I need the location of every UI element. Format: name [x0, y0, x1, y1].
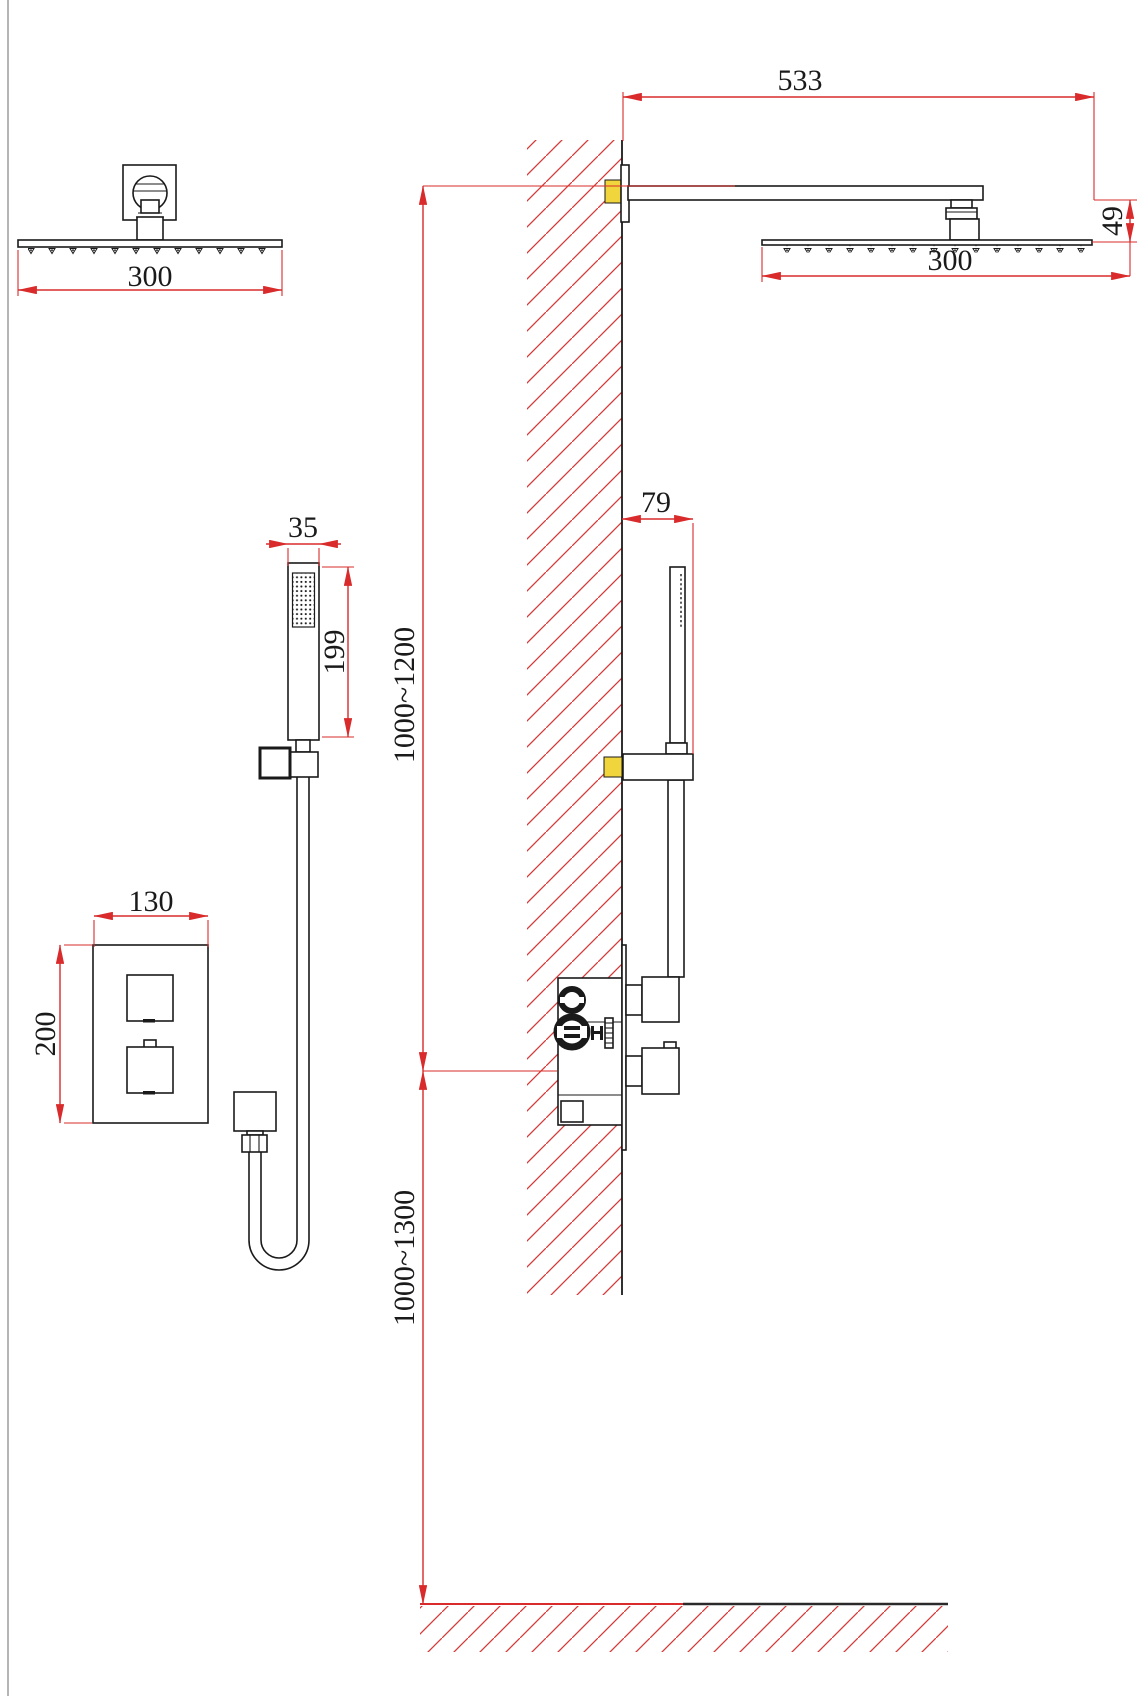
- port-slot-bar2: [564, 1034, 580, 1038]
- hose-outlet-elbow: [234, 1092, 276, 1131]
- dim-label-valve-plate-height: 200: [29, 1012, 62, 1057]
- dim-label-side-arm-length: 533: [778, 64, 823, 97]
- bracket-wall-anchor: [604, 757, 622, 777]
- rain-head-front-view: [18, 165, 282, 255]
- hand-shower-side-body: [670, 567, 685, 743]
- knob-stem-bottom: [626, 1056, 642, 1086]
- threaded-connector: [605, 1018, 613, 1048]
- flow-knob-notch: [143, 1091, 155, 1095]
- dim-label-side-head-width: 300: [928, 244, 973, 277]
- valve-lower-port: [561, 1101, 583, 1122]
- dim-front-head-width: 300: [18, 250, 282, 296]
- valve-port-top-slot: [560, 997, 584, 1003]
- port-slot-bar: [564, 1026, 580, 1030]
- handle-neck: [296, 740, 310, 752]
- floor-hatch: [420, 1606, 948, 1652]
- temp-knob-notch: [143, 1019, 155, 1023]
- arm-connector-flare: [946, 208, 977, 219]
- knob-stem-top: [626, 985, 642, 1015]
- head-plate-front: [18, 240, 282, 247]
- shower-hose: [249, 777, 309, 1270]
- technical-drawing-canvas: 300 35 199 130: [0, 0, 1138, 1696]
- dim-label-arm-height-range: 1000~1200: [388, 627, 421, 763]
- drawing-sheet: 300 35 199 130: [0, 0, 1138, 1696]
- ball-joint-neck: [141, 200, 159, 213]
- spray-face: [293, 573, 315, 627]
- hand-shower-front-view: [249, 563, 319, 1270]
- flow-knob: [127, 1047, 173, 1093]
- valve-knob-top-side: [642, 977, 679, 1022]
- dim-label-hand-shower-width: 35: [288, 511, 318, 544]
- dim-hand-shower-width: 35: [266, 511, 341, 566]
- dim-valve-plate-width: 130: [94, 885, 208, 947]
- shower-arm: [628, 186, 983, 200]
- nozzle-row-front: [28, 247, 272, 255]
- outlet-nut: [242, 1135, 267, 1152]
- slide-bar: [668, 780, 684, 977]
- dim-side-head-drop: 49: [1092, 200, 1137, 276]
- holder-bracket-front: [260, 748, 290, 778]
- valve-front-view: [93, 945, 276, 1152]
- dim-hand-shower-length: 199: [318, 567, 354, 737]
- holder-grip: [666, 743, 687, 754]
- dim-label-hand-shower-length: 199: [318, 630, 351, 675]
- valve-trim-plate-side: [622, 945, 626, 1150]
- dim-label-bar-wall-offset: 79: [641, 486, 671, 519]
- head-stem-front: [137, 217, 163, 240]
- arm-drop-tube: [951, 200, 972, 208]
- dim-label-valve-plate-width: 130: [129, 885, 174, 918]
- h-bar-cross: [591, 1031, 603, 1034]
- temperature-knob: [127, 975, 173, 1021]
- dim-label-front-head-width: 300: [128, 260, 173, 293]
- shower-arm-side-view: [605, 165, 1092, 253]
- dim-valve-plate-height: 200: [29, 945, 92, 1123]
- dim-side-arm-length: 533: [623, 64, 1094, 200]
- dim-label-side-head-drop: 49: [1096, 206, 1129, 236]
- slide-bar-bracket: [623, 754, 693, 780]
- valve-knob-bottom-side: [642, 1048, 679, 1094]
- arm-wall-anchor: [605, 180, 621, 203]
- valve-plate-front: [93, 945, 208, 1123]
- head-ball-block: [950, 219, 979, 240]
- handle-knuckle: [290, 752, 318, 777]
- floor-section: [420, 1604, 948, 1652]
- dim-label-valve-height-range: 1000~1300: [388, 1190, 421, 1326]
